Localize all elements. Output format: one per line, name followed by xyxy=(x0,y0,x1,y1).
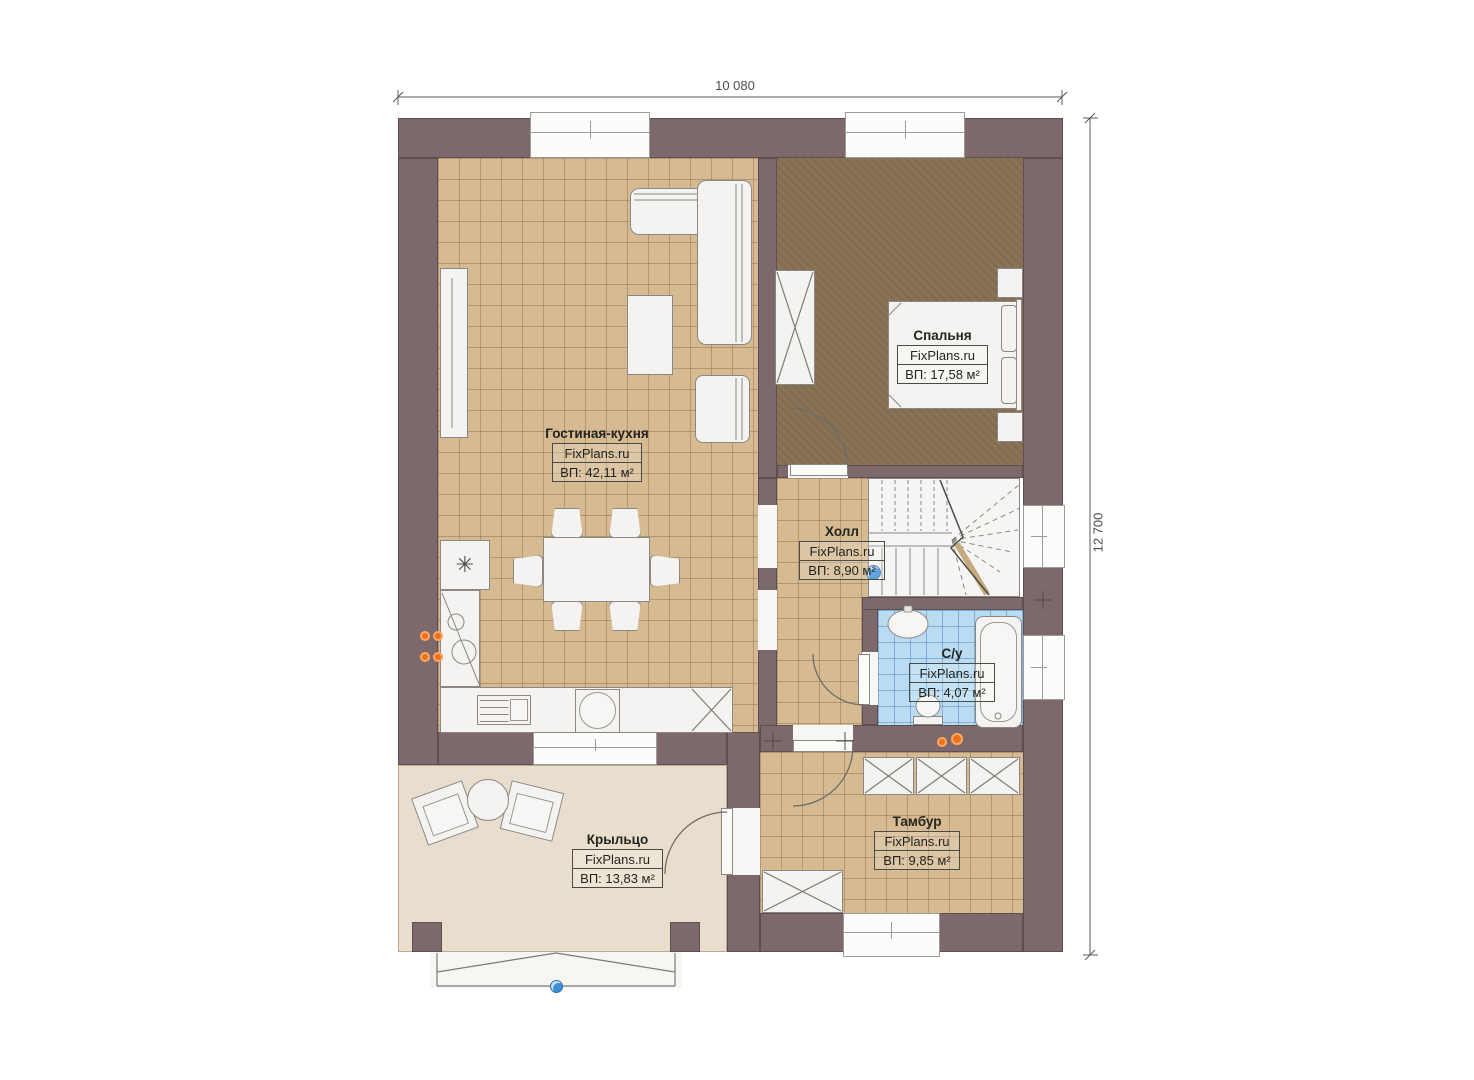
room-area: ВП: 4,07 м² xyxy=(910,683,994,701)
porch-column xyxy=(670,922,700,952)
nightstand xyxy=(997,268,1023,298)
dining-table xyxy=(543,537,650,602)
room-info-box: FixPlans.ru ВП: 9,85 м² xyxy=(874,831,960,870)
drawer-knob xyxy=(510,699,528,721)
bed-pillow xyxy=(1001,305,1017,352)
window-living-top xyxy=(530,112,650,158)
window-stairs-right xyxy=(1023,505,1065,568)
kitchen-sink-unit xyxy=(575,689,620,733)
freezer-icon: ✳ xyxy=(456,554,474,576)
bedroom-wardrobe xyxy=(775,270,815,385)
toilet-tank xyxy=(913,716,943,725)
dining-chair xyxy=(551,508,583,538)
level-marker-icon xyxy=(550,980,563,993)
stove-burner-icon xyxy=(433,631,443,641)
armchair xyxy=(695,375,750,443)
room-label-hall: Холл FixPlans.ru ВП: 8,90 м² xyxy=(793,524,891,580)
dining-chair xyxy=(551,601,583,631)
room-name: Крыльцо xyxy=(587,832,648,847)
heater-icon xyxy=(937,737,947,747)
window-tambour-bottom xyxy=(843,913,940,957)
fridge-freezer: ✳ xyxy=(440,540,490,590)
porch-column xyxy=(412,922,442,952)
bed-pillow xyxy=(1001,357,1017,404)
room-label-tambour: Тамбур FixPlans.ru ВП: 9,85 м² xyxy=(868,814,966,870)
brand-watermark: FixPlans.ru xyxy=(573,850,662,869)
room-label-bedroom: Спальня FixPlans.ru ВП: 17,58 м² xyxy=(890,328,995,384)
brand-watermark: FixPlans.ru xyxy=(875,832,959,851)
room-name: Гостиная-кухня xyxy=(545,426,648,441)
room-area: ВП: 13,83 м² xyxy=(573,869,662,887)
coffee-table xyxy=(627,295,673,375)
room-area: ВП: 42,11 м² xyxy=(553,463,641,481)
dimension-width: 10 080 xyxy=(700,78,770,93)
brand-watermark: FixPlans.ru xyxy=(553,444,641,463)
door-leaf-entry xyxy=(721,808,733,875)
tambour-wardrobe xyxy=(916,757,967,795)
room-label-living: Гостиная-кухня FixPlans.ru ВП: 42,11 м² xyxy=(533,426,661,482)
dining-chair xyxy=(513,555,543,587)
window-bedroom-top xyxy=(845,112,965,158)
room-info-box: FixPlans.ru ВП: 13,83 м² xyxy=(572,849,663,888)
room-area: ВП: 8,90 м² xyxy=(800,561,884,579)
wall-exterior-left xyxy=(398,158,438,765)
corner-sofa xyxy=(697,180,752,345)
dining-chair xyxy=(609,508,641,538)
chair-seat xyxy=(509,793,554,833)
opening-living-hall-1 xyxy=(758,505,777,568)
tambour-cabinet xyxy=(762,870,843,913)
room-name: Тамбур xyxy=(893,814,942,829)
tambour-wardrobe xyxy=(969,757,1020,795)
brand-watermark: FixPlans.ru xyxy=(910,664,994,683)
door-leaf-bedroom xyxy=(790,464,848,476)
room-area: ВП: 17,58 м² xyxy=(898,365,987,383)
hall-floor-lower xyxy=(777,597,862,725)
room-name: Холл xyxy=(825,524,859,539)
dimension-height: 12 700 xyxy=(1091,498,1106,568)
room-area: ВП: 9,85 м² xyxy=(875,851,959,869)
stove-burner-icon xyxy=(420,631,430,641)
kitchen-counter-left xyxy=(440,590,480,687)
door-leaf-bathroom xyxy=(858,654,870,705)
wall-stairs-bathroom xyxy=(862,597,1023,610)
kitchen-drawers xyxy=(477,695,531,725)
dining-chair xyxy=(609,601,641,631)
room-info-box: FixPlans.ru ВП: 17,58 м² xyxy=(897,345,988,384)
tv-stand xyxy=(440,268,468,438)
heater-icon xyxy=(951,733,963,745)
brand-watermark: FixPlans.ru xyxy=(800,542,884,561)
room-info-box: FixPlans.ru ВП: 4,07 м² xyxy=(909,663,995,702)
room-name: С/у xyxy=(941,646,962,661)
dining-chair xyxy=(650,555,680,587)
room-info-box: FixPlans.ru ВП: 8,90 м² xyxy=(799,541,885,580)
nightstand xyxy=(997,412,1023,442)
chair-seat xyxy=(422,793,469,836)
window-bathroom-right xyxy=(1023,635,1065,700)
bed-headboard xyxy=(1016,299,1022,411)
stove-burner-icon xyxy=(433,652,443,662)
door-leaf-tambour xyxy=(793,740,853,752)
room-name: Спальня xyxy=(913,328,971,343)
room-label-bathroom: С/у FixPlans.ru ВП: 4,07 м² xyxy=(903,646,1001,702)
floor-plan-canvas: ✳ xyxy=(0,0,1474,1080)
room-label-porch: Крыльцо FixPlans.ru ВП: 13,83 м² xyxy=(560,832,675,888)
tambour-wardrobe xyxy=(863,757,914,795)
porch-table xyxy=(467,779,509,821)
brand-watermark: FixPlans.ru xyxy=(898,346,987,365)
opening-living-hall-2 xyxy=(758,590,777,650)
stove-burner-icon xyxy=(420,652,430,662)
window-living-porch xyxy=(533,732,657,765)
room-info-box: FixPlans.ru ВП: 42,11 м² xyxy=(552,443,642,482)
sink-basin xyxy=(579,692,616,729)
